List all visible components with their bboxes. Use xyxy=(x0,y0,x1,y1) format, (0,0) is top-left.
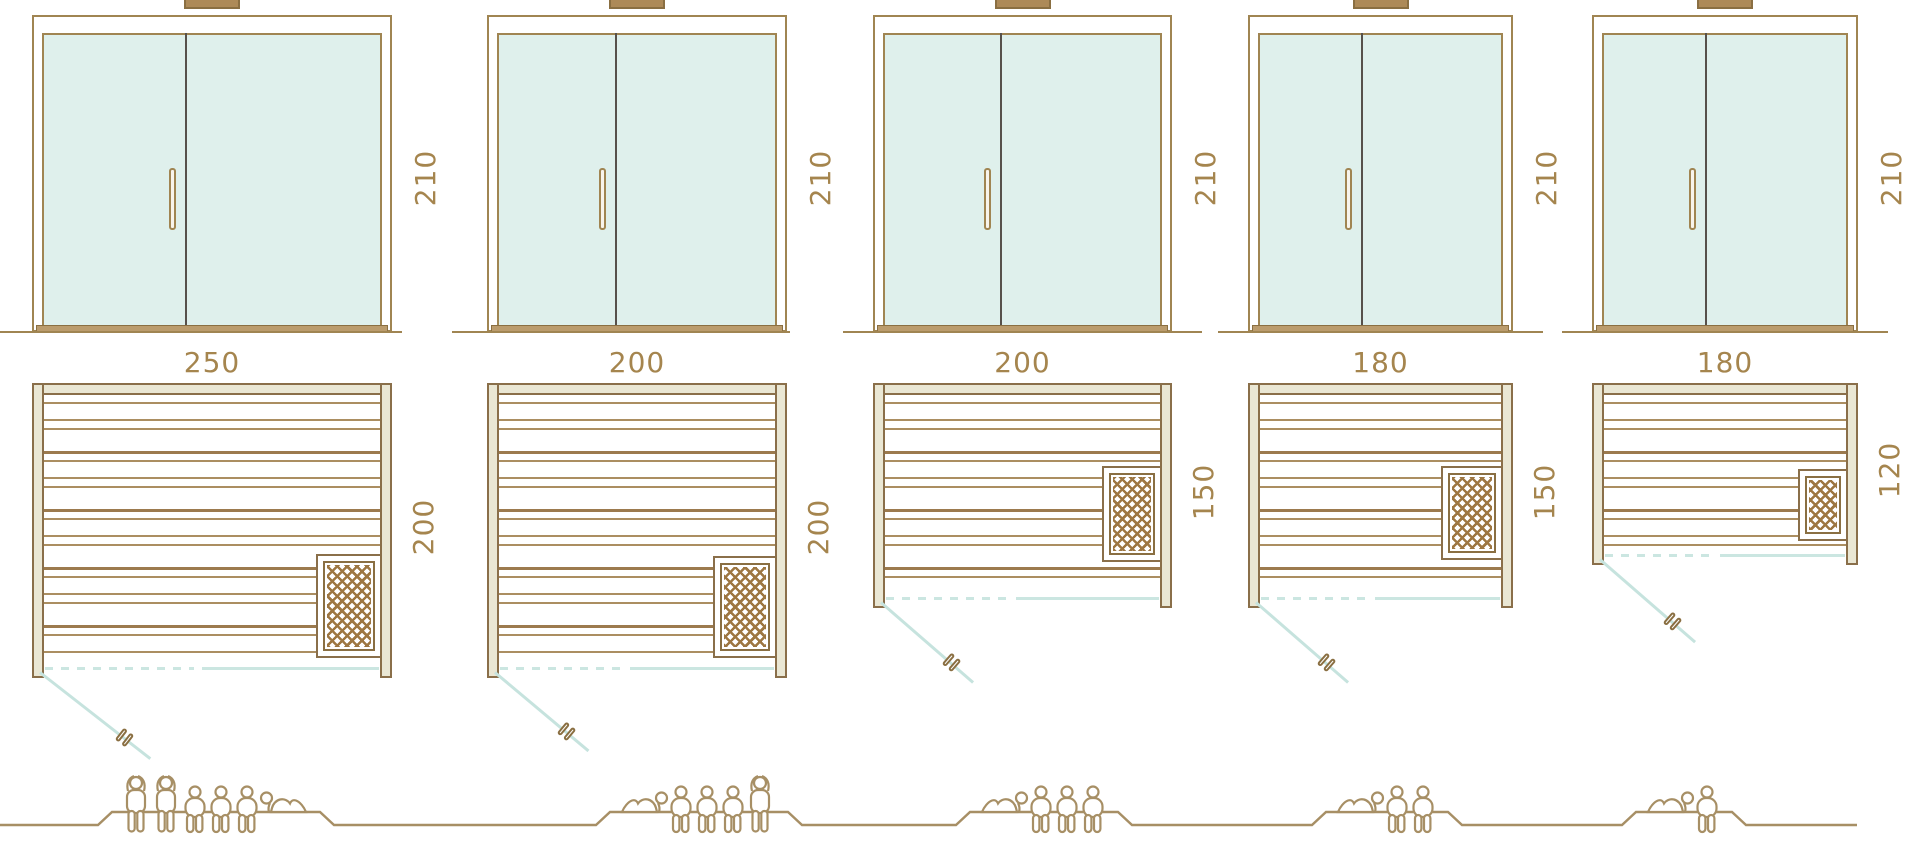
figure-standing xyxy=(751,776,769,832)
figure-seated xyxy=(1388,787,1407,833)
figure-seated xyxy=(1698,787,1717,833)
figure-seated xyxy=(1414,787,1433,833)
figure-lying xyxy=(982,793,1027,813)
figure-lying xyxy=(1338,793,1383,813)
figure-standing xyxy=(127,776,145,832)
figure-seated xyxy=(672,787,691,833)
sauna-size-comparison-diagram: 2102502002102002002102001502101801502101… xyxy=(0,0,1920,856)
figure-seated xyxy=(724,787,743,833)
figure-seated xyxy=(698,787,717,833)
ground-bench-profile xyxy=(0,812,1857,825)
figure-lying xyxy=(261,793,306,813)
figure-seated xyxy=(238,787,257,833)
figure-lying xyxy=(1648,793,1693,813)
figure-seated xyxy=(1032,787,1051,833)
figure-seated xyxy=(186,787,205,833)
capacity-row xyxy=(0,0,1920,856)
figure-seated xyxy=(212,787,231,833)
figure-seated xyxy=(1084,787,1103,833)
figure-standing xyxy=(157,776,175,832)
figure-seated xyxy=(1058,787,1077,833)
figure-lying xyxy=(622,793,667,813)
